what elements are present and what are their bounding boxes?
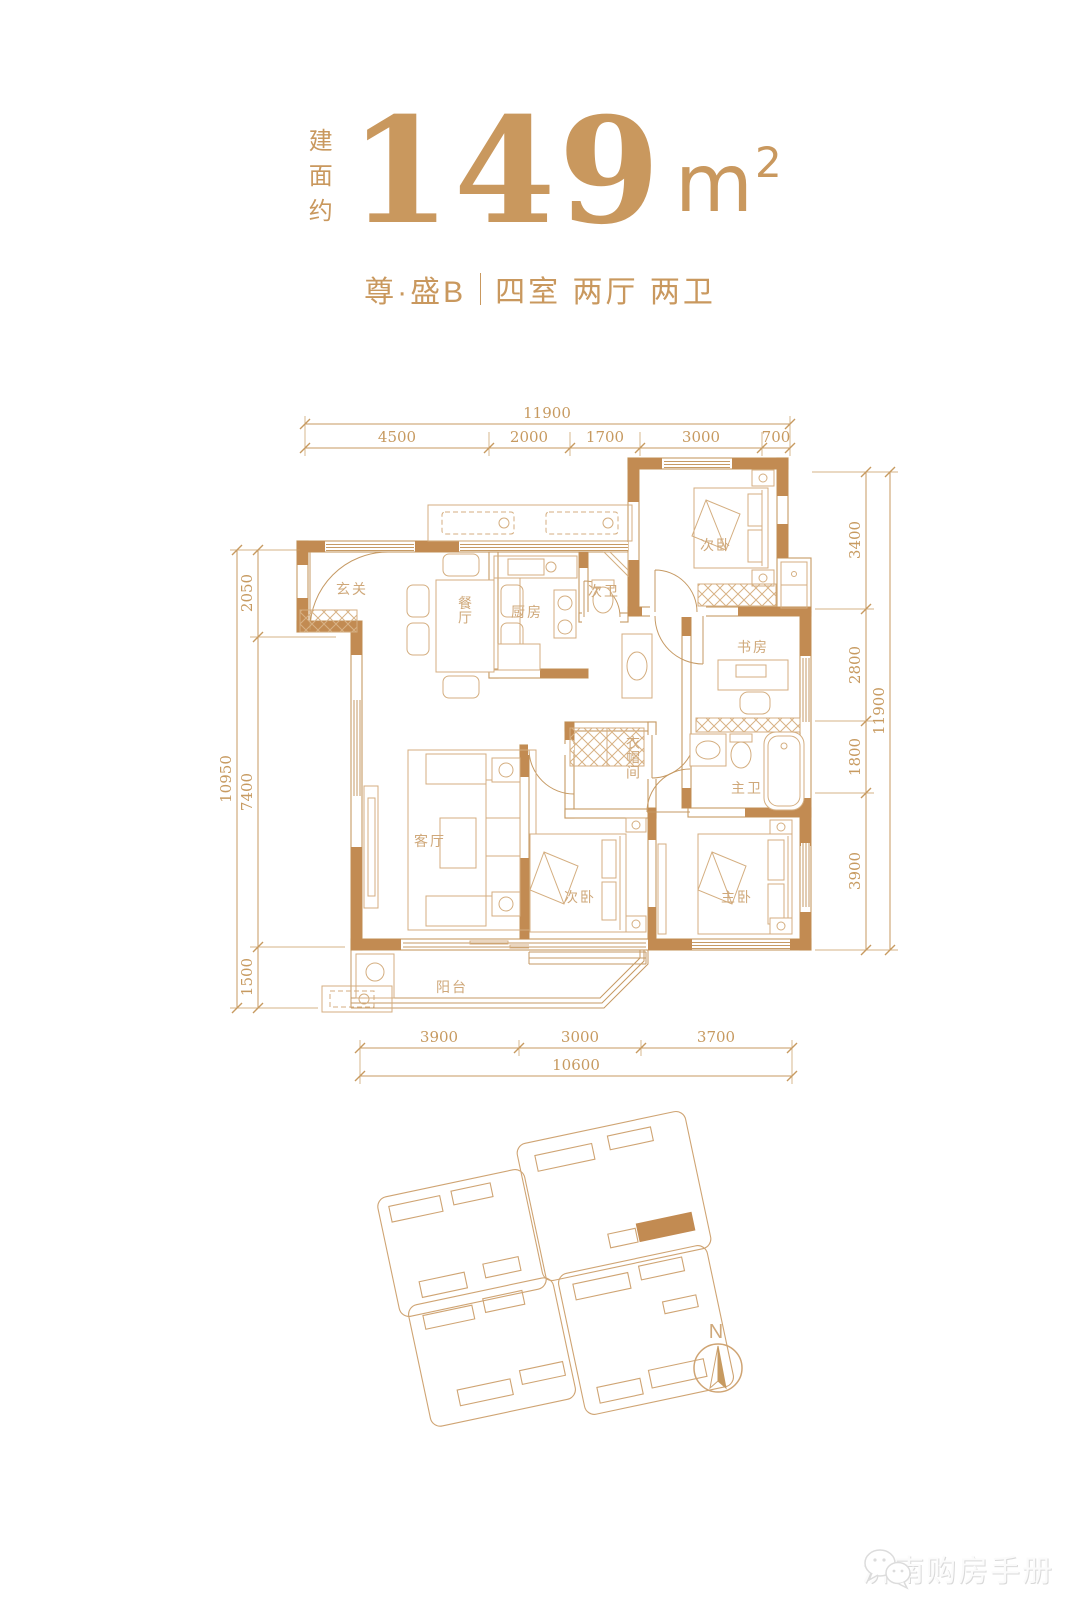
dimension-bottom: 3900 3000 3700 10600 bbox=[355, 1028, 797, 1084]
watermark: 济南购房手册 bbox=[862, 1546, 1054, 1590]
compass: N bbox=[694, 1321, 742, 1392]
room-label-master-bedroom: 主卧 bbox=[721, 889, 753, 905]
room-label-bedroom-mid: 次卧 bbox=[564, 889, 596, 905]
room-label-balcony: 阳台 bbox=[436, 979, 468, 995]
room-label-cloakroom: 衣帽间 bbox=[626, 735, 642, 780]
dim-bottom-seg3: 3700 bbox=[697, 1028, 735, 1046]
site-block-1 bbox=[376, 1168, 548, 1319]
bedroom-mid-furniture bbox=[530, 818, 646, 932]
balcony-items bbox=[322, 950, 648, 1012]
dim-right-seg3: 1800 bbox=[846, 738, 864, 776]
dim-bottom-seg1: 3900 bbox=[420, 1028, 458, 1046]
room-label-study: 书房 bbox=[737, 639, 769, 655]
room-label-kitchen: 厨房 bbox=[511, 604, 543, 620]
floor-plan-drawing: 玄关 餐厅 厨房 次卫 次卧 书房 衣帽间 主卫 客厅 次卧 主卧 阳台 119… bbox=[0, 0, 1080, 1622]
dim-left-seg2: 7400 bbox=[238, 773, 256, 811]
dim-right-total: 11900 bbox=[870, 687, 888, 735]
dim-right-seg1: 3400 bbox=[846, 521, 864, 559]
room-label-bedroom-top: 次卧 bbox=[700, 537, 732, 553]
highlighted-building bbox=[636, 1212, 695, 1241]
dim-top-seg1: 4500 bbox=[378, 428, 416, 446]
compass-north-label: N bbox=[709, 1321, 723, 1343]
dim-top-seg4: 3000 bbox=[682, 428, 720, 446]
site-plan bbox=[376, 1110, 735, 1428]
dim-top-total: 11900 bbox=[523, 404, 571, 422]
floorplan-poster: 建面约 149 m2 尊·盛B 四室 两厅 两卫 bbox=[0, 0, 1080, 1622]
dim-top-seg5: 700 bbox=[762, 428, 791, 446]
room-label-dining: 餐厅 bbox=[458, 595, 474, 626]
living-furniture bbox=[364, 750, 536, 930]
dimension-top: 11900 4500 2000 1700 3000 700 bbox=[300, 404, 795, 456]
site-block-2 bbox=[515, 1110, 712, 1283]
dim-bottom-total: 10600 bbox=[552, 1056, 600, 1074]
compass-needle-east bbox=[718, 1346, 726, 1388]
wechat-bubbles-icon bbox=[862, 1546, 914, 1590]
entrance-cabinet bbox=[300, 610, 357, 632]
dim-right-seg4: 3900 bbox=[846, 852, 864, 890]
dim-bottom-seg2: 3000 bbox=[561, 1028, 599, 1046]
room-label-master-bath: 主卫 bbox=[731, 780, 763, 796]
dim-right-seg2: 2800 bbox=[846, 646, 864, 684]
study-furniture bbox=[696, 660, 800, 732]
room-label-living: 客厅 bbox=[414, 833, 446, 849]
dim-top-seg2: 2000 bbox=[510, 428, 548, 446]
room-label-guest-bath: 次卫 bbox=[588, 583, 620, 599]
master-bedroom-furniture bbox=[658, 820, 792, 934]
dim-top-seg3: 1700 bbox=[586, 428, 624, 446]
dim-left-total: 10950 bbox=[217, 755, 235, 803]
dim-left-seg1: 2050 bbox=[238, 574, 256, 612]
hall-vanity bbox=[622, 634, 652, 698]
master-bath-fixtures bbox=[690, 732, 804, 810]
room-label-entrance: 玄关 bbox=[336, 581, 368, 597]
dimension-right: 3400 2800 1800 3900 11900 bbox=[812, 467, 898, 955]
dim-left-seg3: 1500 bbox=[238, 958, 256, 996]
compass-needle-west bbox=[710, 1346, 718, 1388]
